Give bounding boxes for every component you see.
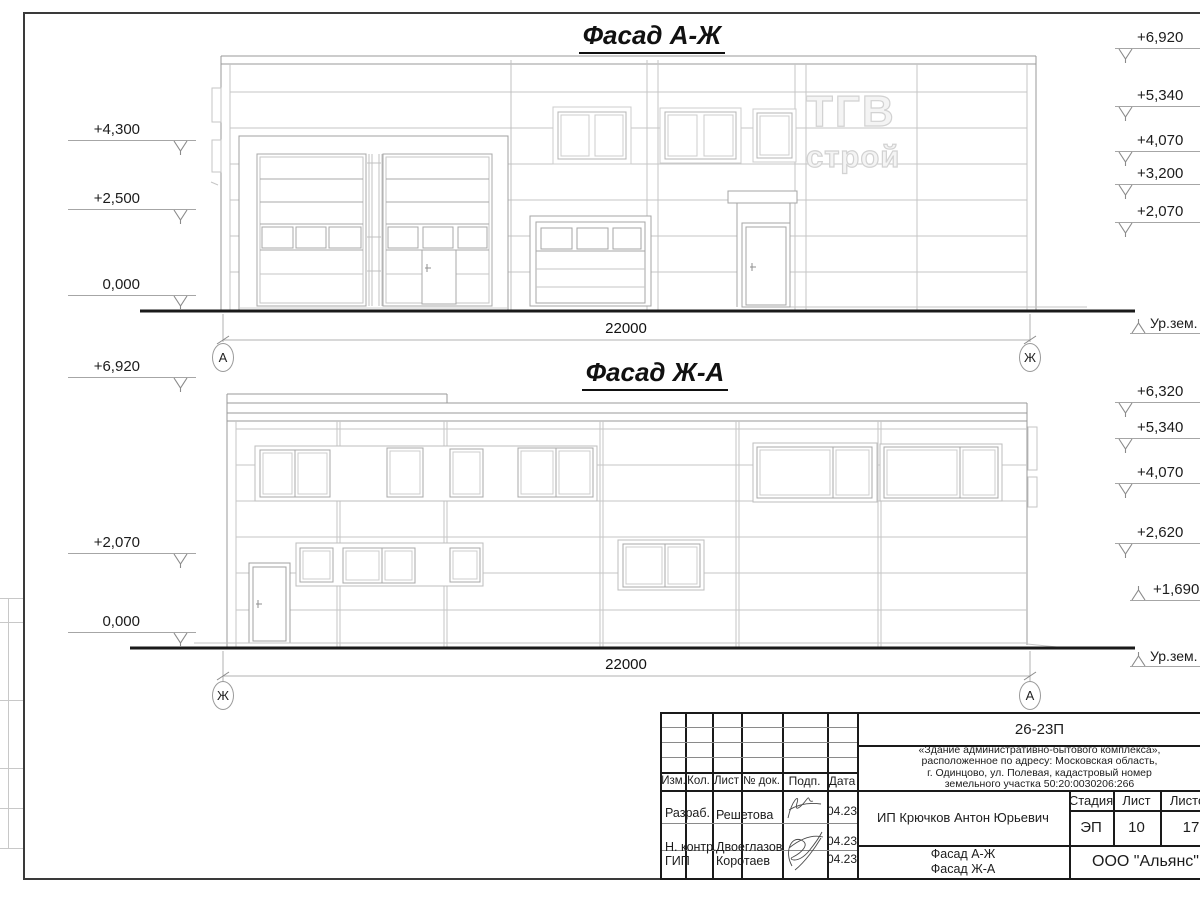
client-name: ИП Крючков Антон Юрьевич: [857, 790, 1069, 845]
elevation-value: +5,340: [1115, 87, 1200, 107]
sheet-label: Лист: [1113, 790, 1160, 810]
row-role: Н. контр.: [665, 840, 717, 854]
elevation-tick-icon: [173, 553, 188, 569]
sheets-total: 17: [1160, 810, 1200, 845]
elevation-value: +4,070: [1115, 464, 1200, 484]
elevation-mark: +4,070: [1115, 132, 1200, 152]
elevation-tick-icon: [173, 295, 188, 311]
facade-1-drawing: [130, 50, 1140, 352]
stage-value: ЭП: [1069, 810, 1113, 845]
row-name: Двоеглазов: [716, 840, 782, 854]
elevation-tick-icon: [1118, 402, 1133, 418]
elevation-value: +6,920: [1115, 29, 1200, 49]
sheet-number: 10: [1113, 810, 1160, 845]
elevation-mark: +2,620: [1115, 524, 1200, 544]
window: [753, 109, 796, 162]
window: [660, 108, 741, 163]
elevation-value: +6,920: [68, 358, 196, 378]
elevation-value: +3,200: [1115, 165, 1200, 185]
axis-bubble: А: [212, 343, 234, 372]
col-podp: Подп.: [782, 772, 827, 790]
col-izm: Изм.: [662, 772, 685, 790]
elevation-mark: 0,000: [68, 276, 196, 296]
elevation-tick-up-icon: [1131, 585, 1146, 601]
elevation-value: +4,300: [68, 121, 196, 141]
elevation-value: +2,500: [68, 190, 196, 210]
sheets-label: Листов: [1160, 790, 1200, 810]
elevation-mark: +4,070: [1115, 464, 1200, 484]
drawing-sheet: { "sheet": { "facade1": { "title": "Фаса…: [0, 0, 1200, 900]
elevation-tick-icon: [1118, 483, 1133, 499]
dimension-value: 22000: [526, 656, 726, 673]
facade-2-title: Фасад Ж-А: [505, 357, 805, 388]
small-garage-door: [530, 216, 651, 306]
elevation-tick-icon: [173, 632, 188, 648]
window: [880, 444, 1002, 501]
row-date: 04.23: [827, 851, 857, 867]
sheet-frame-left: [23, 12, 25, 880]
row-name: Решетова: [716, 808, 773, 822]
axis-bubble: Ж: [212, 681, 234, 710]
row-date: 04.23: [827, 802, 857, 820]
doc-number: 26-23П: [857, 714, 1200, 745]
ground-level-mark: Ур.зем.: [1130, 648, 1200, 667]
row-role: ГИП: [665, 854, 690, 868]
col-kol: Кол.: [685, 772, 712, 790]
signatures: [780, 790, 828, 878]
sheet-frame-top: [23, 12, 1200, 14]
entrance-door: [249, 563, 290, 643]
elevation-value: +2,070: [1115, 203, 1200, 223]
watermark-logo: ТГВ строй: [806, 90, 900, 172]
ground-level-mark: Ур.зем.: [1130, 315, 1200, 334]
col-data: Дата: [827, 772, 857, 790]
window-band-upper: [255, 446, 597, 501]
col-dok: № док.: [741, 772, 782, 790]
elevation-value: +4,070: [1115, 132, 1200, 152]
elevation-tick-icon: [173, 140, 188, 156]
sheet-subject: Фасад А-Ж Фасад Ж-А: [857, 845, 1069, 878]
elevation-tick-icon: [173, 377, 188, 393]
elevation-tick-icon: [1118, 48, 1133, 64]
elevation-mark: +4,300: [68, 121, 196, 141]
row-role: Разраб.: [665, 806, 710, 820]
elevation-value: +6,320: [1115, 383, 1200, 403]
window: [553, 107, 631, 164]
row-name: Коротаев: [716, 854, 770, 868]
window-band-lower: [296, 543, 483, 586]
elevation-value: 0,000: [68, 276, 196, 296]
elevation-mark: +2,070: [68, 534, 196, 554]
facade-1-title: Фасад А-Ж: [502, 20, 802, 51]
elevation-mark: +3,200: [1115, 165, 1200, 185]
elevation-value: +5,340: [1115, 419, 1200, 439]
elevation-mark: +6,920: [68, 358, 196, 378]
company-name: ООО "Альянс": [1069, 845, 1200, 878]
elevation-tick-up-icon: [1131, 318, 1146, 334]
elevation-mark: +6,920: [1115, 29, 1200, 49]
elevation-value: +2,070: [68, 534, 196, 554]
title-block: Изм. Кол. Лист № док. Подп. Дата Разраб.…: [660, 712, 1200, 880]
elevation-mark: +1,690: [1130, 581, 1200, 601]
window: [753, 443, 877, 502]
elevation-tick-icon: [1118, 106, 1133, 122]
stage-label: Стадия: [1069, 790, 1113, 810]
elevation-tick-up-icon: [1131, 651, 1146, 667]
elevation-tick-icon: [1118, 222, 1133, 238]
col-list: Лист: [712, 772, 741, 790]
elevation-mark: +5,340: [1115, 87, 1200, 107]
axis-bubble: А: [1019, 681, 1041, 710]
entrance-door: [728, 191, 797, 307]
elevation-mark: +2,070: [1115, 203, 1200, 223]
project-description: «Здание административно-бытового комплек…: [857, 745, 1200, 790]
elevation-tick-icon: [1118, 438, 1133, 454]
elevation-mark: 0,000: [68, 613, 196, 633]
elevation-value: 0,000: [68, 613, 196, 633]
elevation-mark: +2,500: [68, 190, 196, 210]
elevation-tick-icon: [1118, 184, 1133, 200]
axis-bubble: Ж: [1019, 343, 1041, 372]
row-date: 04.23: [827, 833, 857, 849]
dimension-value: 22000: [526, 320, 726, 337]
window: [618, 540, 704, 590]
facade-2-drawing: [130, 388, 1140, 688]
elevation-tick-icon: [173, 209, 188, 225]
elevation-value: +2,620: [1115, 524, 1200, 544]
elevation-mark: +5,340: [1115, 419, 1200, 439]
elevation-mark: +6,320: [1115, 383, 1200, 403]
elevation-tick-icon: [1118, 543, 1133, 559]
